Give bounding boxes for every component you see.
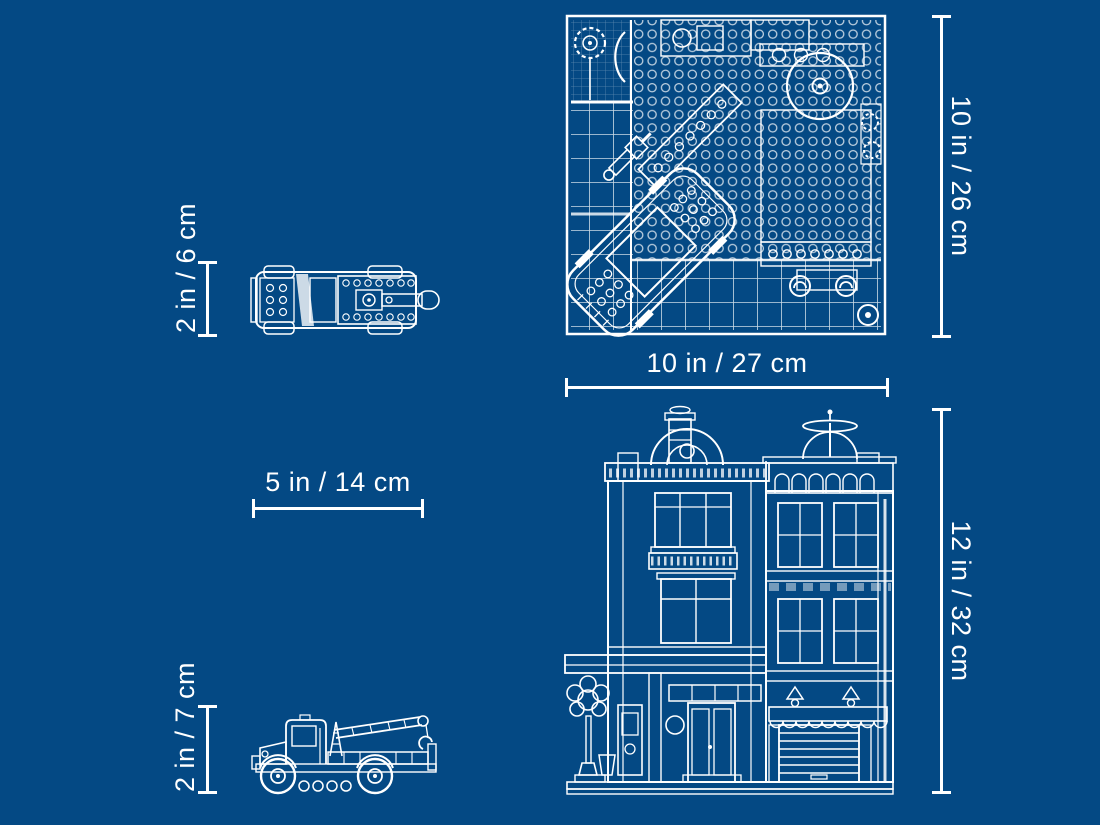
dimension-cap [565, 378, 568, 397]
right-building-section [763, 410, 896, 783]
truck-top-view [250, 258, 440, 342]
dimension-line [206, 705, 209, 794]
dimension-cap [932, 15, 951, 18]
dimension-line [940, 15, 943, 338]
gas-pump [618, 705, 642, 775]
dimension-label-truck-width: 2 in / 6 cm [171, 178, 201, 358]
truck-chassis [256, 764, 436, 791]
crane-boom [330, 716, 432, 756]
tow-hook [419, 737, 432, 749]
dimension-line [565, 386, 889, 389]
garage-lamp [787, 687, 803, 707]
dimension-line-building-width [565, 378, 889, 397]
balcony [649, 553, 737, 569]
truck-cab [286, 715, 326, 764]
truck-bed-top [338, 276, 416, 324]
sidewalk-base [567, 782, 893, 794]
roof-parapet [763, 453, 896, 493]
lower-windows-right [778, 599, 878, 663]
umbrella [803, 410, 857, 458]
dimension-cap [932, 408, 951, 411]
pediment-arch [651, 429, 723, 465]
dimension-line [206, 261, 209, 337]
cab-roof [310, 278, 336, 322]
boom-top [382, 291, 439, 309]
building-top-view [565, 14, 887, 336]
chimney [665, 407, 695, 464]
dimension-label-truck-length: 5 in / 14 cm [252, 467, 424, 497]
tree [567, 676, 609, 782]
garage-door [769, 725, 871, 782]
garage-lamp [843, 687, 859, 707]
dimension-line-truck-height [198, 705, 217, 794]
dimension-cap [421, 499, 424, 518]
blueprint-canvas: 10 in / 26 cm 10 in / 27 cm [0, 0, 1100, 825]
upper-windows-right [778, 503, 878, 567]
porthole-window [666, 716, 684, 734]
windshield-top [296, 274, 314, 326]
hood-studs [260, 278, 294, 322]
truck-side-view [248, 700, 448, 796]
dimension-cap [886, 378, 889, 397]
dimension-line [940, 408, 943, 794]
dimension-line-truck-length [252, 499, 424, 518]
tile-floor-left [571, 102, 633, 330]
dimension-label-building-width: 10 in / 27 cm [565, 348, 889, 378]
left-building-section [565, 407, 769, 783]
upper-window-left [651, 493, 735, 553]
dimension-cap [252, 499, 255, 518]
dimension-line [252, 507, 424, 510]
entrance-door [683, 703, 741, 782]
dimension-label-building-height: 12 in / 32 cm [946, 491, 976, 711]
building-front-view [563, 403, 897, 795]
dimension-cap [932, 335, 951, 338]
dimension-cap [198, 791, 217, 794]
transom-band [669, 685, 761, 701]
dimension-label-truck-height: 2 in / 7 cm [170, 637, 200, 817]
dimension-cap [198, 705, 217, 708]
middle-window-left [657, 573, 735, 643]
dimension-label-building-depth: 10 in / 26 cm [946, 66, 976, 286]
dimension-cap [932, 791, 951, 794]
